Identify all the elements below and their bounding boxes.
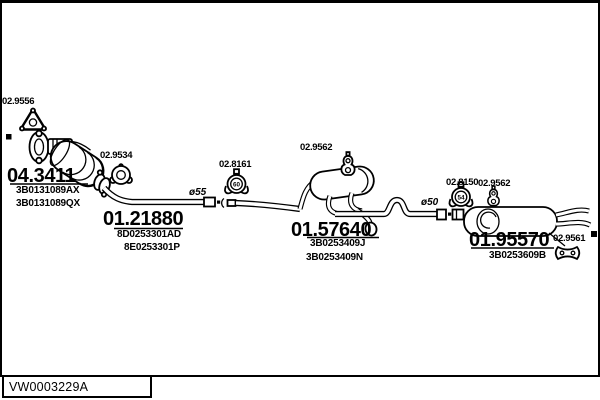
rubber-hanger-icon-rear bbox=[488, 186, 499, 205]
oe-number: 3B0253409N bbox=[306, 253, 363, 263]
oe-number: 3B0131089QX bbox=[16, 199, 80, 209]
rubber-hanger-icon-tail bbox=[556, 247, 580, 259]
exhaust-parts-diagram: 60 bbox=[0, 0, 600, 400]
inlet-marker-square bbox=[6, 134, 12, 140]
part-code-catalyst: 04.3411 bbox=[7, 166, 75, 186]
oe-number: 8D0253301AD bbox=[117, 230, 181, 240]
part-code-front-pipe: 01.21880 bbox=[103, 209, 183, 229]
exhaust-system-drawing: 60 bbox=[0, 0, 600, 400]
triangle-gasket-icon bbox=[20, 109, 46, 131]
fitting-code-hanger-rear: 02.9562 bbox=[478, 179, 510, 189]
part-code-centre-muffler: 01.57640 bbox=[291, 220, 371, 240]
oe-number: 8E0253301P bbox=[124, 243, 180, 253]
drawing-number: VW0003229A bbox=[9, 380, 88, 394]
oe-number: 3B0253409J bbox=[310, 239, 365, 249]
pipe-diameter-front: ø55 bbox=[189, 188, 206, 198]
oe-number: 3B0131089AX bbox=[16, 186, 79, 196]
outlet-marker-square bbox=[591, 231, 597, 237]
clamp-icon-front: 60 bbox=[225, 169, 248, 193]
fitting-code-clamp-rear: 02.8150 bbox=[446, 178, 478, 188]
clamp-size-label: 60 bbox=[233, 181, 241, 188]
fitting-code-gasket-ring: 02.9534 bbox=[100, 151, 132, 161]
clamp-size-label: 54 bbox=[457, 194, 465, 201]
rubber-hanger-icon-centre bbox=[341, 152, 354, 175]
ring-gasket-icon bbox=[110, 164, 132, 184]
sleeve-joint-rear bbox=[437, 210, 464, 220]
fitting-code-hanger-centre: 02.9562 bbox=[300, 143, 332, 153]
sleeve-joint-front bbox=[204, 198, 236, 208]
fitting-code-hanger-tail: 02.9561 bbox=[553, 234, 585, 244]
fitting-code-gasket-triangle: 02.9556 bbox=[2, 97, 34, 107]
oe-number: 3B0253609B bbox=[489, 251, 546, 261]
part-code-rear-muffler: 01.95570 bbox=[469, 230, 549, 250]
drawing-number-box: VW0003229A bbox=[2, 377, 152, 398]
pipe-diameter-rear: ø50 bbox=[421, 198, 438, 208]
fitting-code-clamp-front: 02.8161 bbox=[219, 160, 251, 170]
